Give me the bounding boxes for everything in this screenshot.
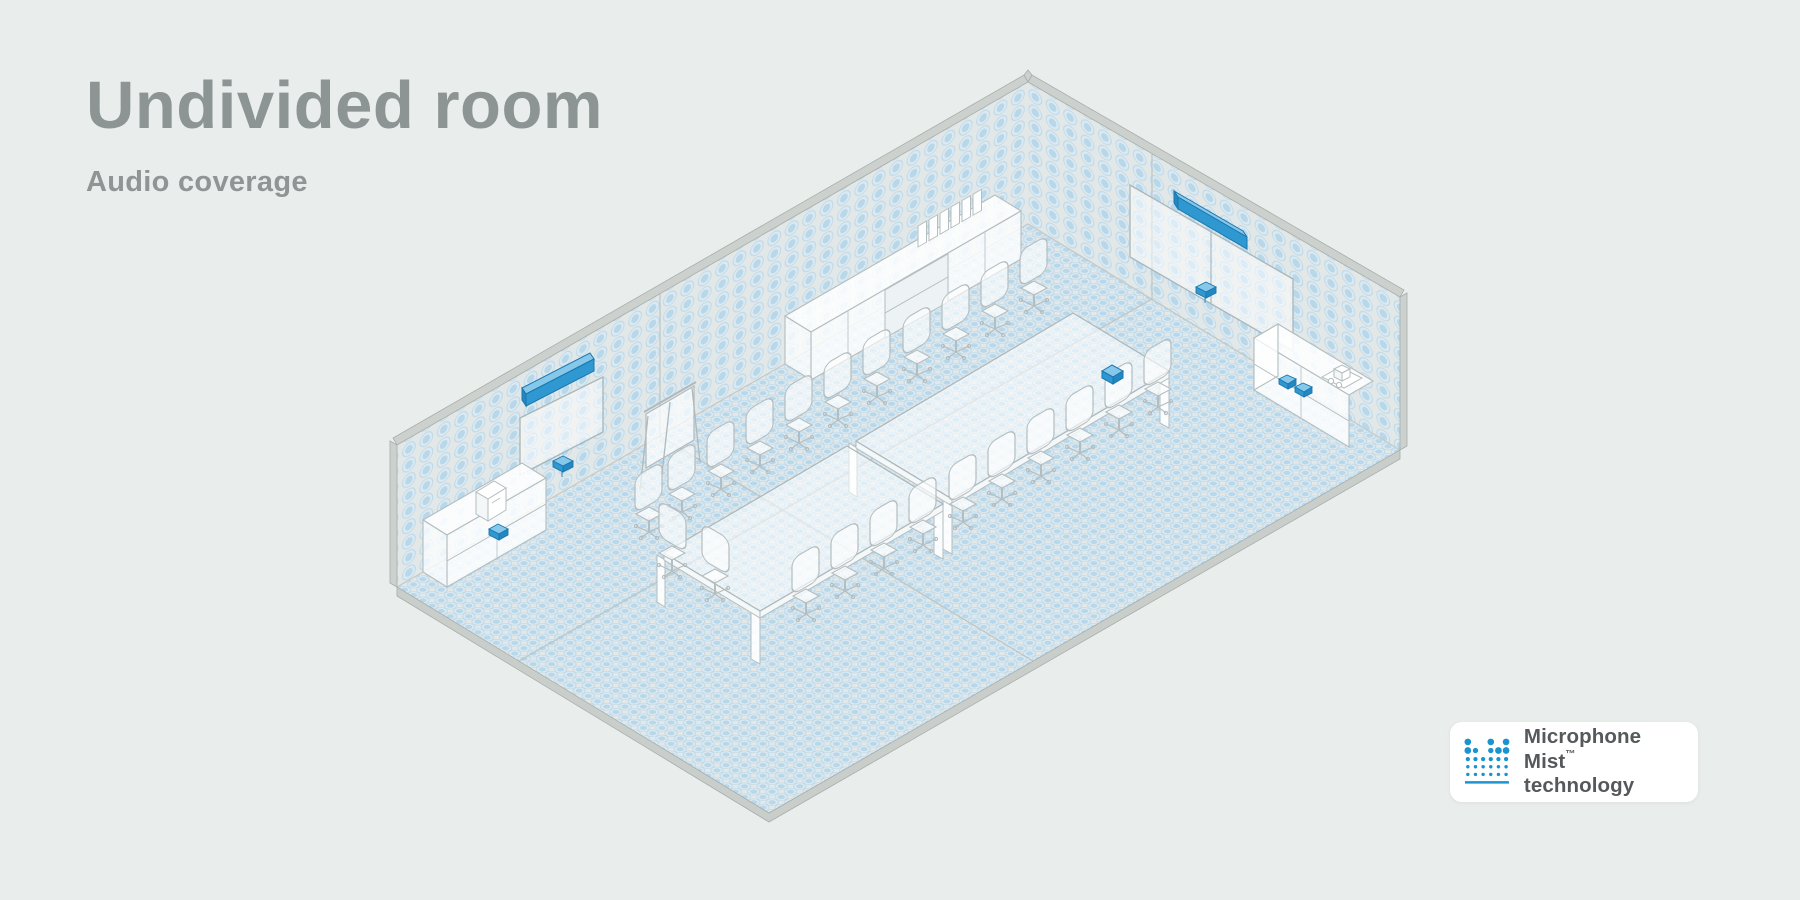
badge-text: Microphone Mist™ technology xyxy=(1524,725,1698,799)
badge-trademark: ™ xyxy=(1565,749,1575,760)
right-wall-end-cap xyxy=(1400,293,1407,450)
microphone-mist-logo-icon xyxy=(1464,735,1510,789)
badge-product: Microphone Mist xyxy=(1524,725,1641,773)
page-header: Undivided room Audio coverage xyxy=(86,72,603,199)
left-wall-end-cap xyxy=(390,441,397,587)
badge-line2: technology xyxy=(1524,774,1634,797)
page-title: Undivided room xyxy=(86,72,603,139)
microphone-mist-badge: Microphone Mist™ technology xyxy=(1450,722,1698,802)
page-subtitle: Audio coverage xyxy=(86,166,603,199)
